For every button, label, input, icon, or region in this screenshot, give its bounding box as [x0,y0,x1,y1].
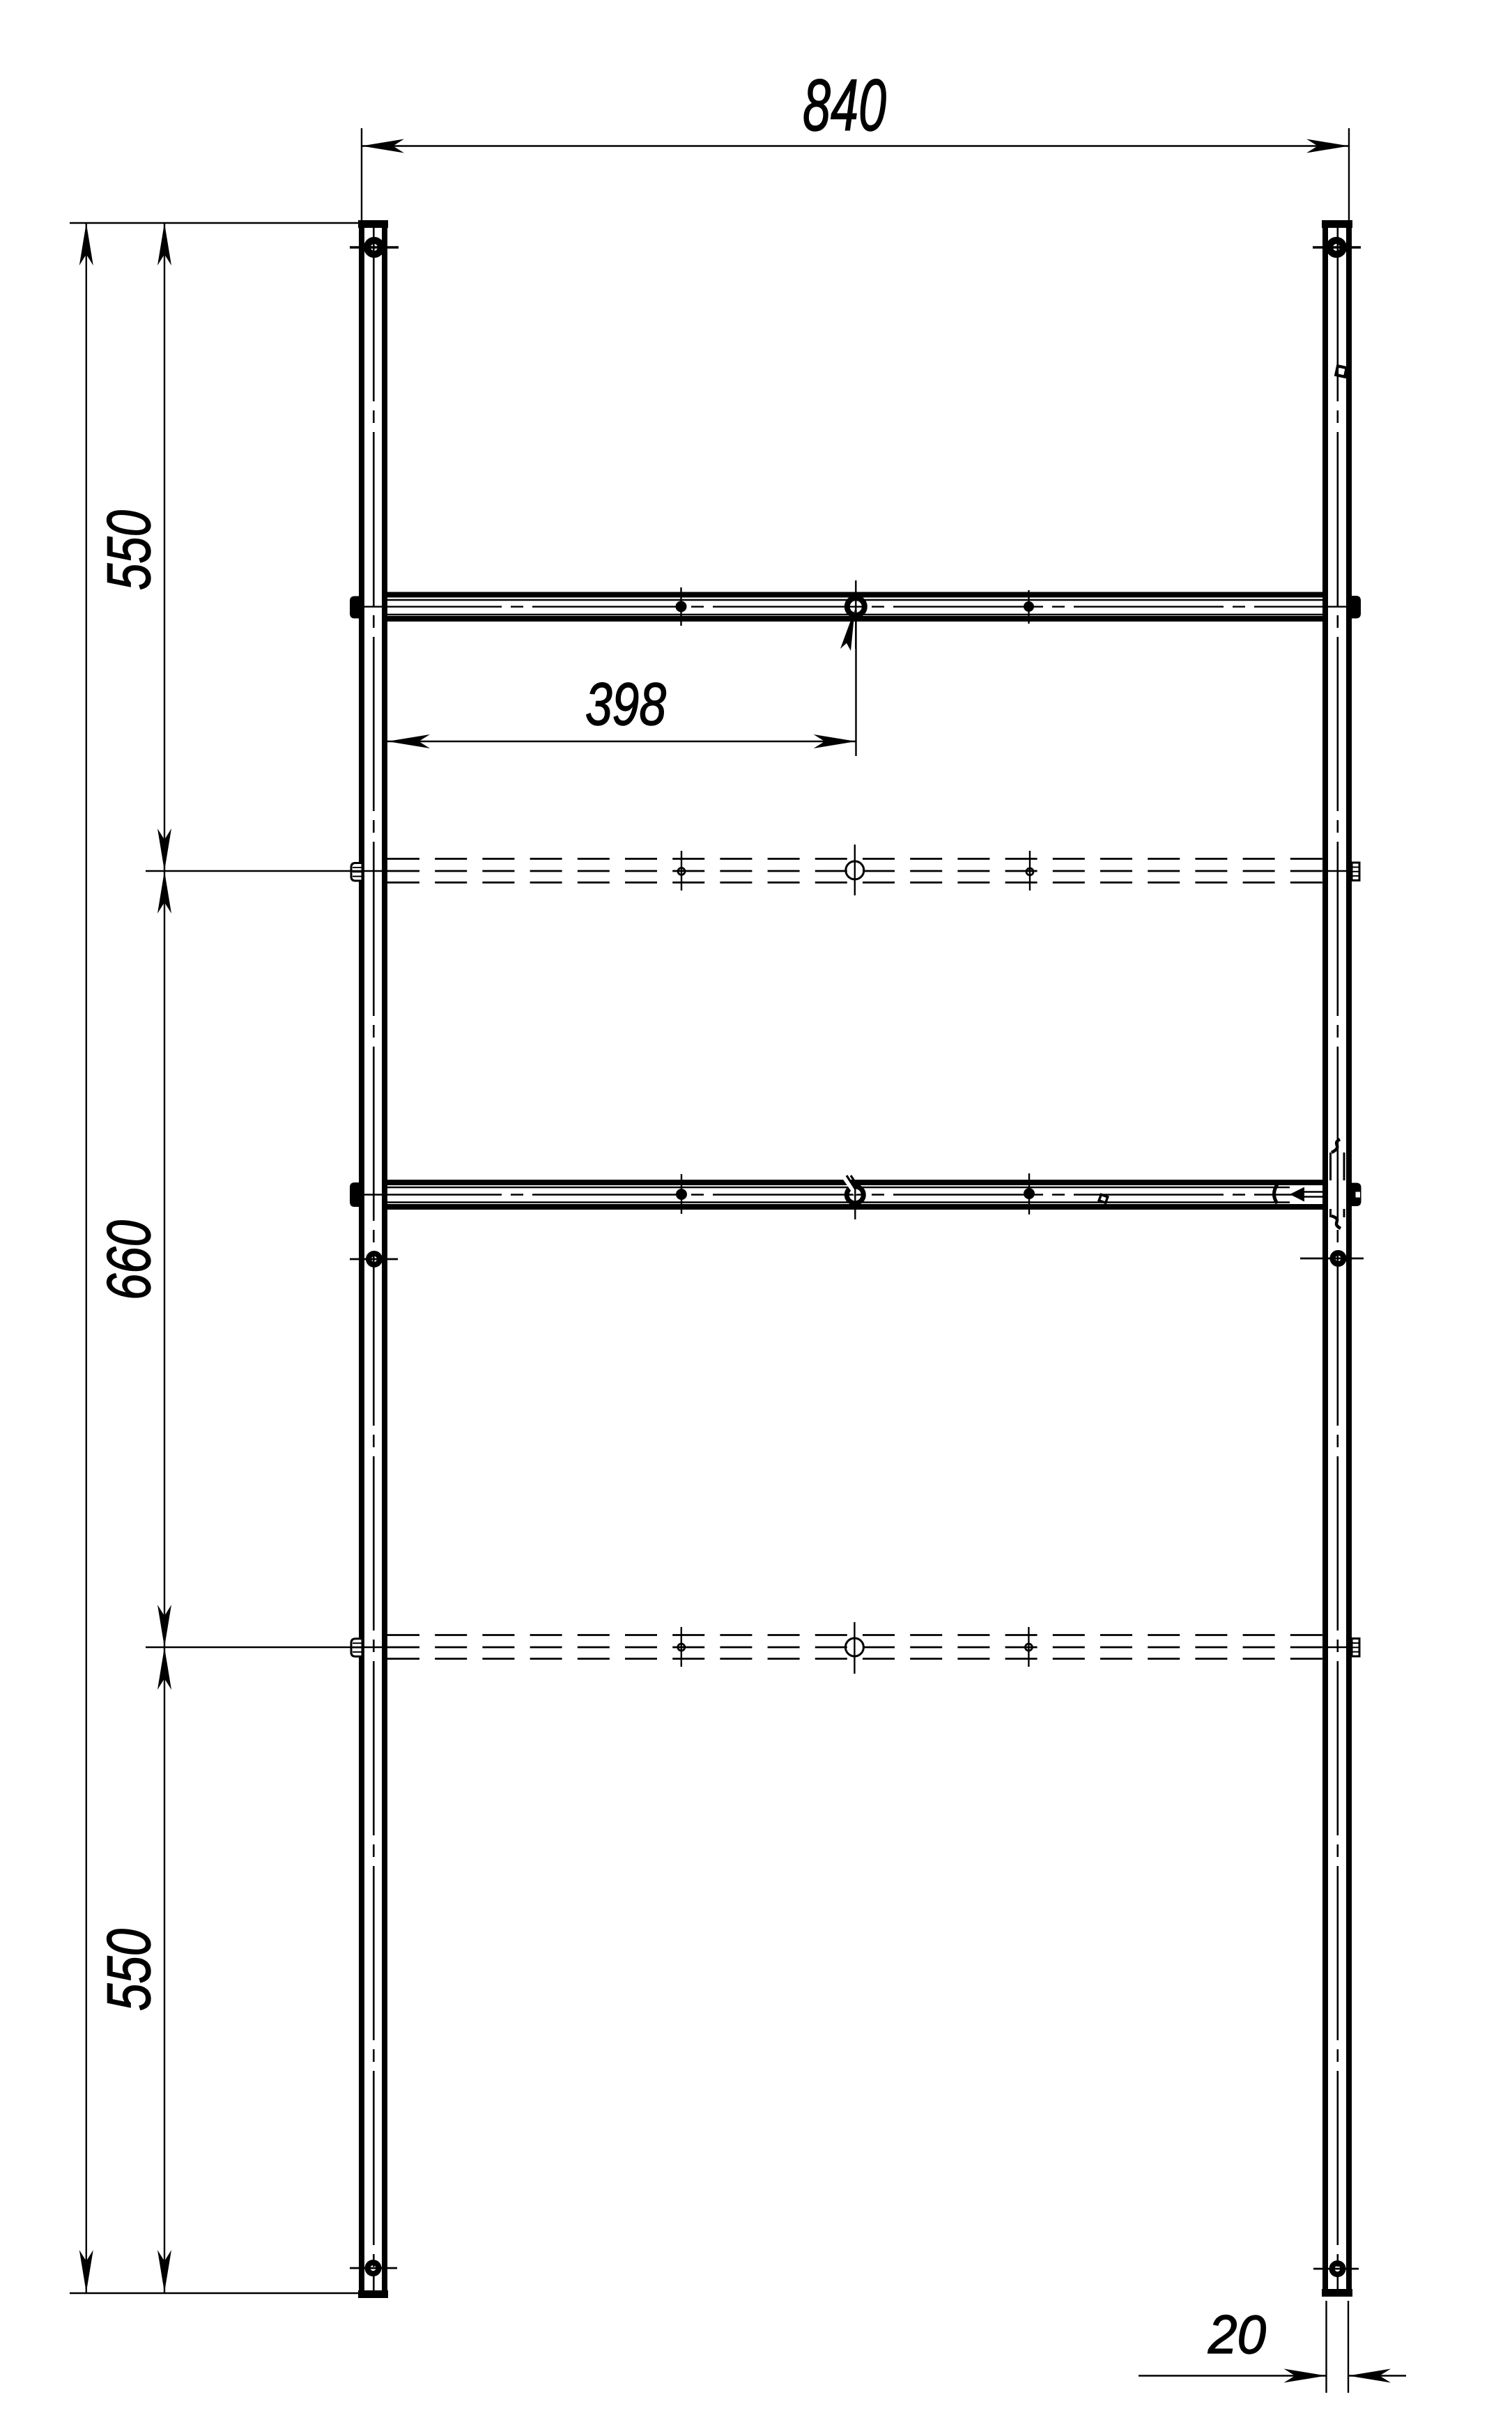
svg-text:660: 660 [94,1220,163,1300]
svg-text:550: 550 [94,1929,163,2011]
svg-text:20: 20 [1208,2304,1266,2365]
svg-text:550: 550 [94,510,163,590]
svg-text:840: 840 [803,65,886,146]
svg-text:398: 398 [585,671,666,738]
